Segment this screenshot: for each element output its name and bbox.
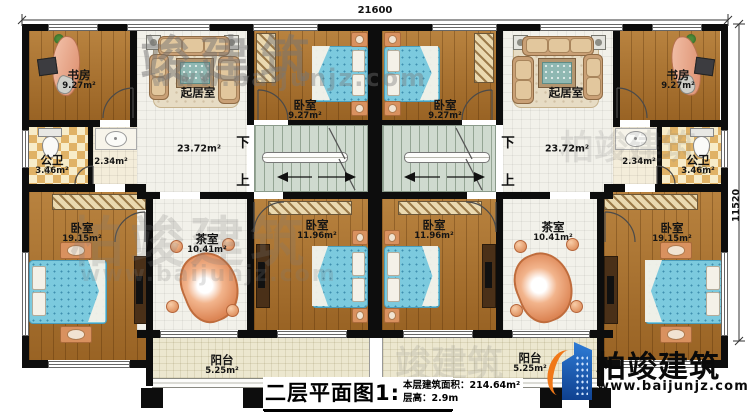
room-label-tea-left: 茶室10.41m²	[187, 233, 226, 255]
room-label-tea-right: 茶室10.41m²	[533, 221, 572, 243]
room-area-living-right: 23.72m²	[545, 145, 589, 156]
wall	[657, 127, 662, 184]
room-label-living-left: 起居室	[181, 87, 216, 100]
plan-stats: 本层建筑面积：214.64m² 层高：2.9m	[400, 378, 523, 406]
tv	[136, 276, 143, 304]
wall	[200, 192, 254, 199]
stair-handrail	[262, 152, 348, 163]
tea-stool	[166, 300, 179, 313]
wall-party	[368, 24, 382, 338]
wall	[473, 330, 512, 338]
wardrobe	[256, 33, 276, 83]
nightstand	[351, 101, 368, 116]
tea-stool	[510, 304, 523, 317]
wall	[137, 192, 160, 199]
computer-monitor	[694, 57, 715, 76]
stair-down-label-right: 下	[501, 131, 515, 151]
wall	[22, 360, 48, 368]
wall	[247, 199, 254, 330]
sink	[105, 131, 127, 147]
stair-up-label-right: 上	[501, 169, 515, 189]
tv	[607, 276, 614, 304]
wall	[88, 127, 93, 184]
pillar	[243, 388, 265, 408]
pillow	[706, 266, 720, 290]
stair-up-label-left: 上	[236, 169, 250, 189]
nightstand	[384, 308, 400, 323]
room-label-balcony-left: 阳台5.25m²	[205, 354, 239, 376]
pillow	[387, 252, 400, 276]
window	[127, 24, 210, 31]
tea-stool	[170, 240, 183, 253]
wall	[130, 360, 152, 368]
pillow	[706, 292, 720, 316]
nightstand	[60, 242, 92, 259]
dimension-top: 21600	[358, 5, 393, 16]
wall	[137, 330, 160, 338]
wall	[283, 192, 368, 199]
window	[22, 252, 29, 336]
window	[540, 24, 623, 31]
nightstand	[351, 32, 368, 47]
wall	[604, 184, 625, 192]
room-label-bedroom-large-right: 卧室19.15m²	[652, 222, 691, 244]
brand-website: www.baijunjz.com	[597, 379, 749, 394]
window	[48, 361, 130, 368]
wall	[613, 31, 620, 127]
wall	[496, 31, 503, 125]
room-area-living-left: 23.72m²	[177, 145, 221, 156]
wall	[382, 330, 403, 338]
pillow	[32, 266, 46, 290]
wall	[382, 192, 467, 199]
window	[721, 130, 728, 168]
window	[403, 331, 473, 338]
room-label-balcony-right: 阳台5.25m²	[513, 352, 547, 374]
window	[721, 252, 728, 336]
room-area-utility-left: 2.34m²	[94, 158, 128, 168]
wall	[590, 192, 613, 199]
window	[432, 24, 497, 31]
balcony-divider	[369, 338, 383, 378]
wall	[496, 192, 550, 199]
sliding-door	[512, 331, 590, 338]
room-label-bedroom-mid-left: 卧室11.96m²	[297, 219, 336, 241]
floor-plan: 书房9.27m² 书房9.27m² 起居室 23.72m² 起居室 23.72m…	[0, 0, 750, 412]
wardrobe	[52, 194, 146, 210]
window	[652, 24, 702, 31]
room-label-bedroom-mid-right: 卧室11.96m²	[414, 219, 453, 241]
wall	[650, 120, 721, 127]
tea-stool	[514, 240, 527, 253]
nightstand	[60, 326, 92, 343]
pillar	[141, 388, 163, 408]
wall	[655, 184, 721, 192]
wardrobe	[398, 201, 482, 215]
wall	[130, 31, 137, 127]
wall	[29, 184, 95, 192]
pillow	[352, 252, 365, 276]
stair-handrail	[404, 152, 490, 163]
tv	[258, 262, 265, 288]
room-label-study-left: 书房9.27m²	[62, 69, 96, 91]
wall	[347, 330, 368, 338]
room-label-bath-right: 公卫3.46m²	[681, 154, 715, 176]
pillow	[32, 292, 46, 316]
window	[22, 130, 29, 168]
building-area-text: 本层建筑面积：214.64m²	[403, 379, 520, 392]
tv	[485, 262, 492, 288]
room-label-living-right: 起居室	[549, 87, 584, 100]
nightstand	[352, 308, 368, 323]
wall	[125, 184, 146, 192]
pillow	[352, 74, 365, 96]
wardrobe	[268, 201, 352, 215]
window	[253, 24, 318, 31]
wall	[146, 192, 153, 386]
floor-height-text: 层高：2.9m	[403, 392, 520, 405]
pillow	[352, 50, 365, 72]
tea-stool	[570, 300, 583, 313]
room-label-study-right: 书房9.27m²	[661, 69, 695, 91]
sliding-door	[160, 331, 238, 338]
nightstand	[384, 230, 400, 245]
room-label-bedroom-small-right: 卧室9.27m²	[428, 99, 462, 121]
wall	[247, 31, 254, 125]
wall	[590, 330, 613, 338]
pillow	[387, 50, 400, 72]
pillow	[387, 278, 400, 302]
pillow	[352, 278, 365, 302]
window	[48, 24, 98, 31]
wall	[238, 330, 277, 338]
tea-stool	[226, 304, 239, 317]
room-label-bath-left: 公卫3.46m²	[35, 154, 69, 176]
stair-down-label-left: 下	[236, 131, 250, 151]
wall	[29, 120, 100, 127]
nightstand	[660, 326, 692, 343]
dimension-right: 11520	[731, 160, 747, 222]
computer-monitor	[37, 57, 58, 76]
wardrobe	[604, 194, 698, 210]
room-label-bedroom-small-left: 卧室9.27m²	[288, 99, 322, 121]
nightstand	[352, 230, 368, 245]
pillow	[387, 74, 400, 96]
room-label-bedroom-large-left: 卧室19.15m²	[62, 222, 101, 244]
window	[277, 331, 347, 338]
nightstand	[384, 32, 401, 47]
nightstand	[384, 101, 401, 116]
room-area-utility-right: 2.34m²	[622, 158, 656, 168]
wardrobe	[474, 33, 494, 83]
wall	[496, 199, 503, 330]
sink	[625, 131, 647, 147]
nightstand	[660, 242, 692, 259]
